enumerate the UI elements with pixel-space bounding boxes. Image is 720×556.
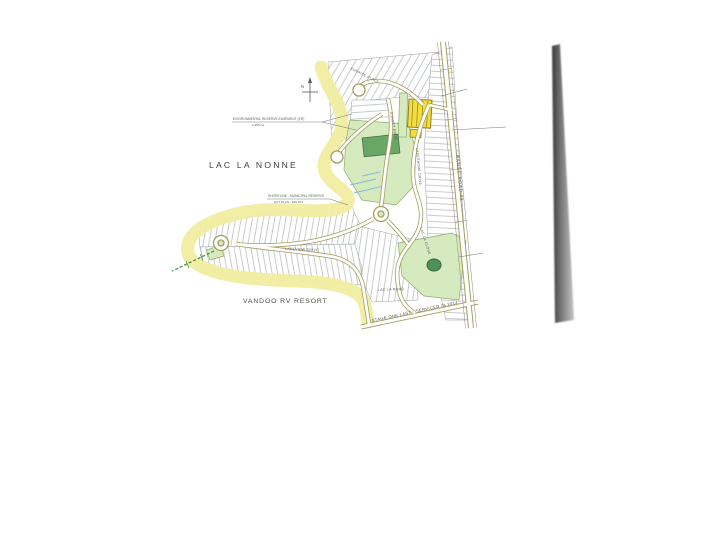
pond (427, 259, 441, 271)
env-reserve-note-line2: 2.995 ha (252, 123, 264, 127)
north-letter: N (301, 84, 304, 89)
culdesac-lakeside (331, 151, 343, 163)
culdesac-peninsula-island (218, 240, 224, 246)
site-plan-drawing: N LAC LA NONNE VANDOO RV RESORT ENVIRONM… (0, 0, 720, 556)
north-arrow-icon: N (301, 77, 318, 102)
lake-name-label: LAC LA NONNE (209, 160, 298, 170)
roundabout-island (378, 211, 384, 217)
scanned-subdivision-plan: N LAC LA NONNE VANDOO RV RESORT ENVIRONM… (0, 0, 720, 556)
scanner-edge-band (552, 44, 574, 323)
north-green-strip (398, 93, 408, 137)
resort-label: VANDOO RV RESORT (243, 298, 328, 305)
lakeshore-drive-label: LAKESHORE DRIVE (415, 148, 422, 186)
shore-note-line2: ACT PLAN - 645 974 (274, 200, 303, 204)
env-reserve-note-line1: ENVIRONMENTAL RESERVE EASEMENT (ER) (233, 117, 304, 121)
culdesac-north (353, 84, 365, 96)
shore-note-line1: SHORELINE - MUNICIPAL RESERVE (268, 194, 325, 198)
right-leader-lower (452, 127, 506, 130)
